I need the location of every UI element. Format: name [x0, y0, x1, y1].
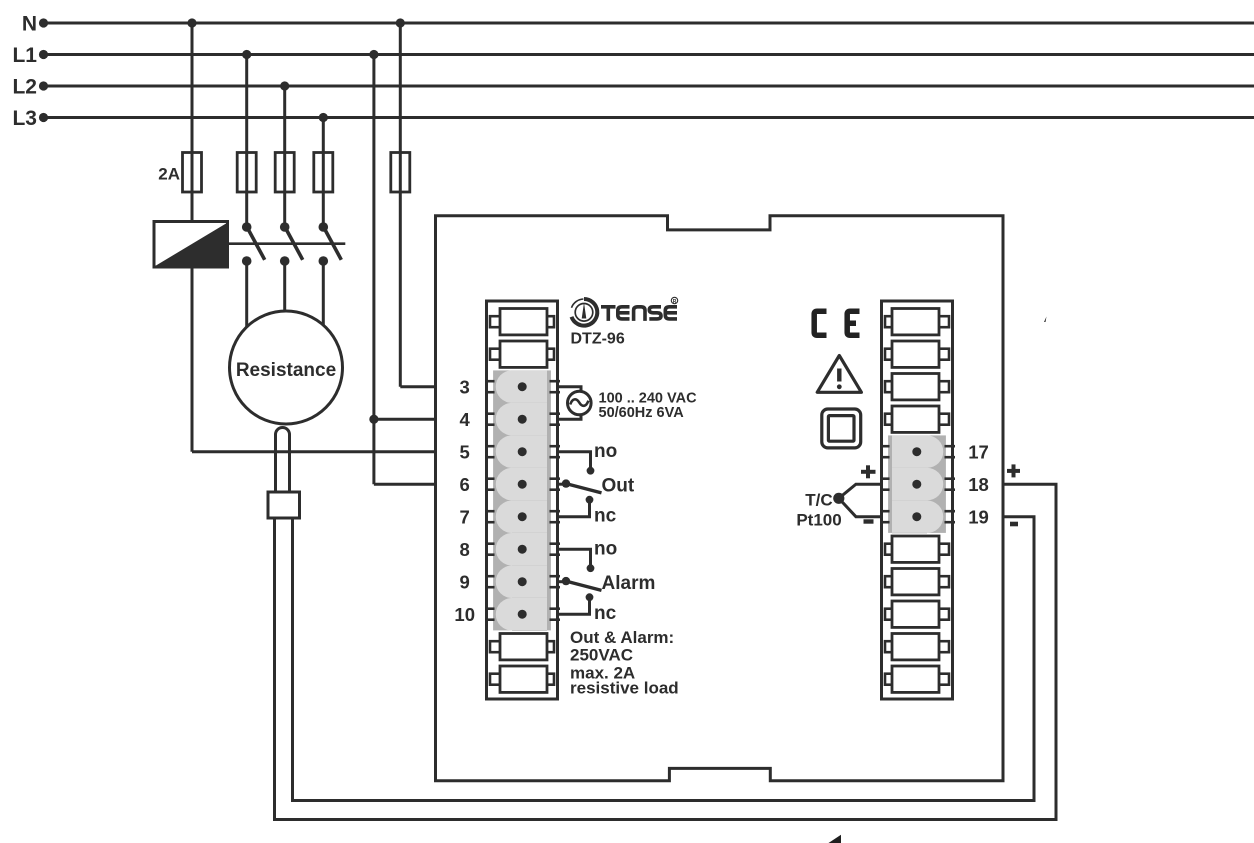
svg-text:6: 6 — [460, 474, 470, 495]
svg-text:Out: Out — [602, 476, 635, 497]
svg-text:Pt100: Pt100 — [796, 511, 841, 530]
svg-text:7: 7 — [460, 507, 470, 528]
svg-text:resistive load: resistive load — [570, 679, 679, 698]
svg-text:2A: 2A — [158, 165, 180, 184]
svg-text:no: no — [594, 441, 617, 462]
svg-text:3: 3 — [460, 377, 470, 398]
svg-text:18: 18 — [968, 474, 989, 495]
svg-text:19: 19 — [968, 507, 989, 528]
svg-text:T/C: T/C — [805, 491, 832, 510]
svg-text:N: N — [22, 13, 37, 36]
svg-text:no: no — [594, 539, 617, 560]
svg-text:L2: L2 — [12, 76, 37, 99]
svg-text:10: 10 — [454, 604, 475, 625]
svg-text:50/60Hz 6VA: 50/60Hz 6VA — [599, 405, 685, 421]
svg-text:nc: nc — [594, 506, 617, 527]
svg-text:L3: L3 — [12, 107, 37, 130]
svg-text:8: 8 — [460, 539, 470, 560]
svg-text:Alarm: Alarm — [602, 573, 656, 594]
svg-text:250VAC: 250VAC — [570, 646, 633, 665]
svg-text:9: 9 — [460, 572, 470, 593]
svg-text:DTZ-96: DTZ-96 — [571, 331, 625, 348]
svg-text:Resistance: Resistance — [236, 360, 336, 381]
svg-text:4: 4 — [460, 409, 471, 430]
svg-text:5: 5 — [460, 442, 470, 463]
svg-text:L1: L1 — [12, 44, 37, 67]
svg-text:nc: nc — [594, 603, 617, 624]
svg-text:R: R — [673, 299, 677, 305]
svg-text:Out & Alarm:: Out & Alarm: — [570, 628, 674, 647]
svg-text:17: 17 — [968, 442, 989, 463]
